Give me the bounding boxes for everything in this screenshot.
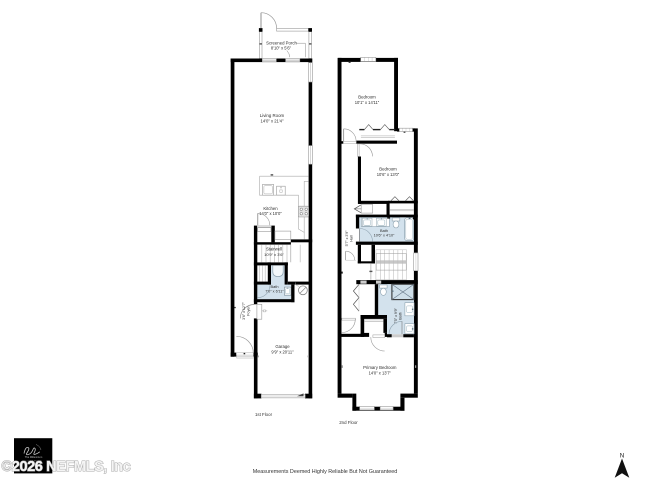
svg-text:5'7" x 3'9": 5'7" x 3'9": [345, 230, 349, 246]
svg-text:Foyer: Foyer: [246, 306, 250, 316]
svg-text:Living Room: Living Room: [260, 113, 285, 118]
svg-text:1st Floor: 1st Floor: [255, 412, 273, 417]
svg-text:8'10" x 5'6": 8'10" x 5'6": [271, 46, 292, 51]
svg-text:Bath: Bath: [398, 312, 402, 320]
svg-text:©2026 NEFMLS, Inc: ©2026 NEFMLS, Inc: [2, 459, 131, 475]
svg-text:7'5" x 9'9": 7'5" x 9'9": [394, 307, 398, 323]
svg-text:Bedroom: Bedroom: [358, 95, 376, 100]
svg-text:10'9" x 3'6": 10'9" x 3'6": [264, 252, 284, 257]
svg-text:Bedroom: Bedroom: [379, 167, 397, 172]
svg-text:Garage: Garage: [275, 344, 290, 349]
svg-text:N: N: [620, 453, 624, 460]
svg-text:10'6" x 13'0": 10'6" x 13'0": [377, 172, 400, 177]
svg-text:14'0" x 10'0": 14'0" x 10'0": [259, 211, 282, 216]
svg-text:14'0" x 21'4": 14'0" x 21'4": [261, 118, 284, 123]
svg-text:Hall: Hall: [349, 235, 353, 242]
svg-text:10'6" x 4'10": 10'6" x 4'10": [374, 233, 395, 237]
svg-text:10'1" x 14'11": 10'1" x 14'11": [355, 100, 380, 105]
svg-text:Bath: Bath: [270, 284, 278, 289]
svg-text:7'0" x 6'11": 7'0" x 6'11": [265, 289, 284, 293]
svg-text:Measurements Deemed Highly Rel: Measurements Deemed Highly Reliable But …: [253, 469, 397, 475]
svg-text:9'9" x 20'11": 9'9" x 20'11": [271, 350, 294, 355]
svg-text:14'0" x 13'7": 14'0" x 13'7": [369, 370, 392, 375]
svg-text:3'6" x 12'7": 3'6" x 12'7": [242, 301, 246, 319]
svg-text:2nd Floor: 2nd Floor: [339, 420, 358, 425]
svg-text:Bath: Bath: [380, 228, 388, 233]
svg-text:Primary Bedroom: Primary Bedroom: [363, 365, 397, 370]
